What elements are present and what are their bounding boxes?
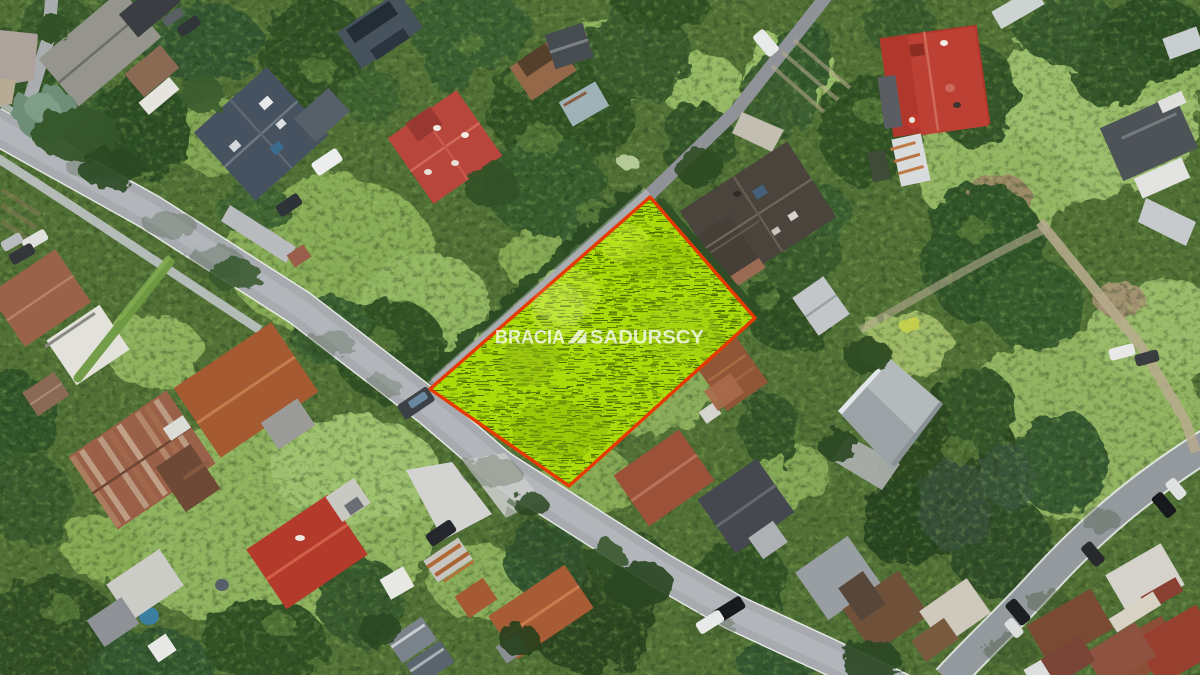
svg-text:SADURSCY: SADURSCY	[590, 327, 704, 349]
svg-text:BRACIA: BRACIA	[495, 327, 565, 349]
